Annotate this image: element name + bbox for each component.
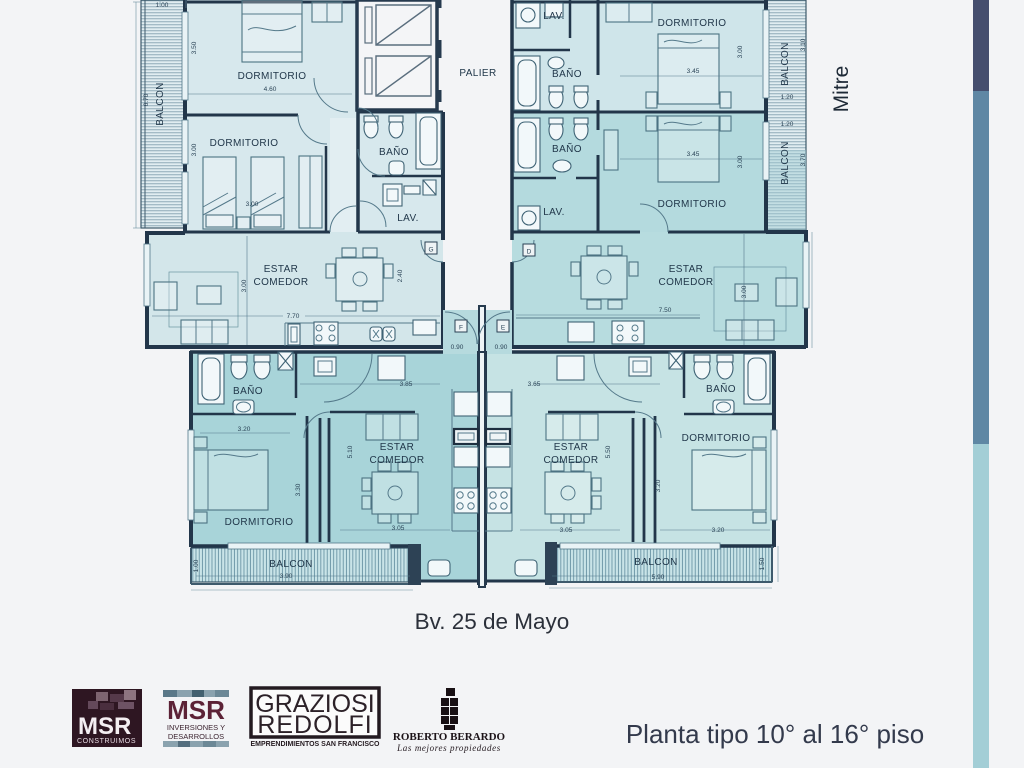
svg-text:3.20: 3.20 bbox=[655, 479, 662, 492]
svg-text:6.70: 6.70 bbox=[143, 93, 150, 106]
svg-text:3.65: 3.65 bbox=[528, 381, 541, 388]
svg-text:3.00: 3.00 bbox=[246, 201, 259, 208]
svg-text:3.05: 3.05 bbox=[392, 525, 405, 532]
svg-text:3.90: 3.90 bbox=[280, 573, 293, 580]
svg-text:3.00: 3.00 bbox=[191, 143, 198, 156]
svg-text:LAV.: LAV. bbox=[543, 207, 565, 218]
svg-text:MSR: MSR bbox=[167, 695, 225, 725]
svg-text:3.00: 3.00 bbox=[737, 45, 744, 58]
svg-text:BAÑO: BAÑO bbox=[552, 142, 582, 155]
svg-text:DORMITORIO: DORMITORIO bbox=[682, 433, 751, 444]
svg-text:3.00: 3.00 bbox=[737, 155, 744, 168]
svg-text:ROBERTO BERARDO: ROBERTO BERARDO bbox=[393, 731, 506, 743]
svg-text:REDOLFI: REDOLFI bbox=[257, 711, 372, 739]
svg-text:3.00: 3.00 bbox=[241, 279, 248, 292]
svg-text:EMPRENDIMIENTOS SAN FRANCISCO: EMPRENDIMIENTOS SAN FRANCISCO bbox=[251, 741, 381, 748]
svg-text:BAÑO: BAÑO bbox=[706, 382, 736, 395]
svg-text:Bv. 25 de Mayo: Bv. 25 de Mayo bbox=[415, 609, 570, 634]
svg-text:7.50: 7.50 bbox=[659, 307, 672, 314]
svg-text:BAÑO: BAÑO bbox=[233, 384, 263, 397]
svg-text:3.10: 3.10 bbox=[800, 38, 807, 51]
svg-text:3.45: 3.45 bbox=[687, 151, 700, 158]
svg-text:2.40: 2.40 bbox=[397, 269, 404, 282]
svg-text:COMEDOR: COMEDOR bbox=[543, 455, 598, 466]
svg-text:1.00: 1.00 bbox=[156, 2, 169, 9]
svg-text:BALCON: BALCON bbox=[269, 559, 313, 570]
svg-text:BAÑO: BAÑO bbox=[552, 67, 582, 80]
svg-text:Planta tipo 10° al 16° piso: Planta tipo 10° al 16° piso bbox=[626, 719, 924, 749]
svg-text:4.60: 4.60 bbox=[264, 86, 277, 93]
svg-text:DORMITORIO: DORMITORIO bbox=[238, 71, 307, 82]
svg-text:1.20: 1.20 bbox=[781, 121, 794, 128]
svg-text:PALIER: PALIER bbox=[459, 68, 496, 79]
svg-text:BALCON: BALCON bbox=[780, 42, 791, 86]
svg-text:COMEDOR: COMEDOR bbox=[253, 277, 308, 288]
svg-text:ESTAR: ESTAR bbox=[669, 264, 704, 275]
svg-text:Mitre: Mitre bbox=[830, 66, 853, 113]
svg-text:COMEDOR: COMEDOR bbox=[369, 455, 424, 466]
svg-text:3.85: 3.85 bbox=[400, 381, 413, 388]
svg-text:3.05: 3.05 bbox=[560, 527, 573, 534]
svg-text:INVERSIONES Y: INVERSIONES Y bbox=[167, 723, 225, 732]
svg-text:F: F bbox=[459, 325, 463, 332]
svg-text:BALCON: BALCON bbox=[155, 82, 166, 126]
svg-text:BAÑO: BAÑO bbox=[379, 145, 409, 158]
svg-text:D: D bbox=[527, 249, 532, 256]
svg-text:5.50: 5.50 bbox=[605, 445, 612, 458]
svg-text:1.20: 1.20 bbox=[781, 94, 794, 101]
svg-text:DORMITORIO: DORMITORIO bbox=[658, 199, 727, 210]
svg-text:BALCON: BALCON bbox=[780, 141, 791, 185]
svg-text:3.00: 3.00 bbox=[741, 285, 748, 298]
svg-text:0.90: 0.90 bbox=[451, 344, 464, 351]
svg-text:3.20: 3.20 bbox=[712, 527, 725, 534]
svg-text:3.30: 3.30 bbox=[295, 483, 302, 496]
svg-text:DORMITORIO: DORMITORIO bbox=[658, 18, 727, 29]
svg-text:0.90: 0.90 bbox=[495, 344, 508, 351]
svg-text:1.50: 1.50 bbox=[759, 557, 766, 570]
svg-text:G: G bbox=[428, 247, 433, 254]
svg-text:CONSTRUIMOS: CONSTRUIMOS bbox=[77, 738, 136, 745]
svg-text:DORMITORIO: DORMITORIO bbox=[210, 138, 279, 149]
svg-text:3.20: 3.20 bbox=[238, 426, 251, 433]
svg-text:DESARROLLOS: DESARROLLOS bbox=[168, 732, 224, 741]
svg-text:3.45: 3.45 bbox=[687, 68, 700, 75]
svg-text:DORMITORIO: DORMITORIO bbox=[225, 517, 294, 528]
svg-text:ESTAR: ESTAR bbox=[264, 264, 299, 275]
svg-text:3.50: 3.50 bbox=[191, 41, 198, 54]
svg-text:LAV.: LAV. bbox=[543, 11, 565, 22]
svg-text:3.70: 3.70 bbox=[800, 153, 807, 166]
svg-text:7.70: 7.70 bbox=[287, 313, 300, 320]
svg-text:COMEDOR: COMEDOR bbox=[658, 277, 713, 288]
svg-text:Las mejores propiedades: Las mejores propiedades bbox=[396, 743, 501, 753]
svg-text:ESTAR: ESTAR bbox=[380, 442, 415, 453]
svg-text:ESTAR: ESTAR bbox=[554, 442, 589, 453]
svg-text:BALCON: BALCON bbox=[634, 557, 678, 568]
svg-text:5.90: 5.90 bbox=[652, 574, 665, 581]
svg-text:5.10: 5.10 bbox=[347, 445, 354, 458]
svg-text:1.00: 1.00 bbox=[193, 559, 200, 572]
svg-text:LAV.: LAV. bbox=[397, 213, 419, 224]
svg-text:E: E bbox=[501, 325, 506, 332]
svg-text:MSR: MSR bbox=[78, 713, 131, 740]
